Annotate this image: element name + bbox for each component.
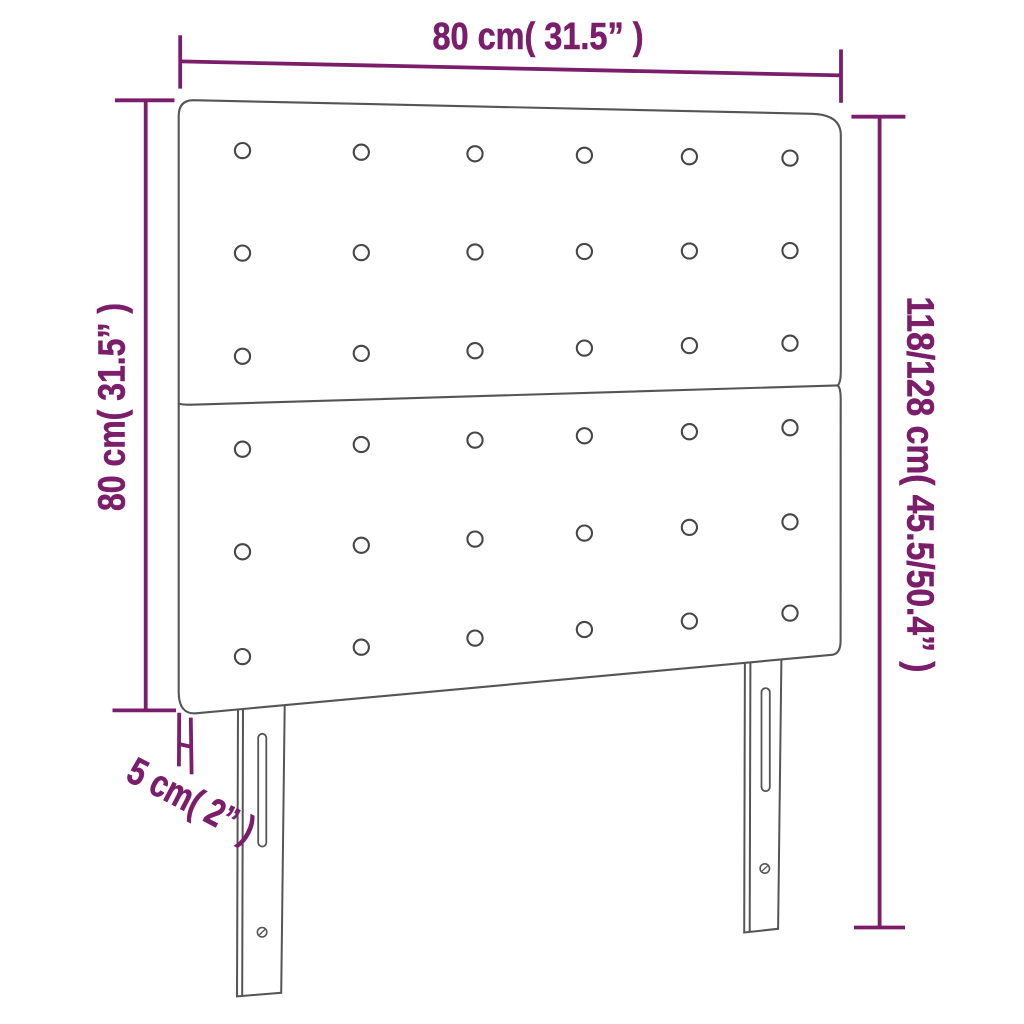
svg-text:80 cm( 31.5” ): 80 cm( 31.5” ) <box>91 303 134 511</box>
svg-text:118/128 cm( 45.5/50.4” ): 118/128 cm( 45.5/50.4” ) <box>899 297 942 673</box>
svg-text:80 cm( 31.5” ): 80 cm( 31.5” ) <box>433 15 644 58</box>
